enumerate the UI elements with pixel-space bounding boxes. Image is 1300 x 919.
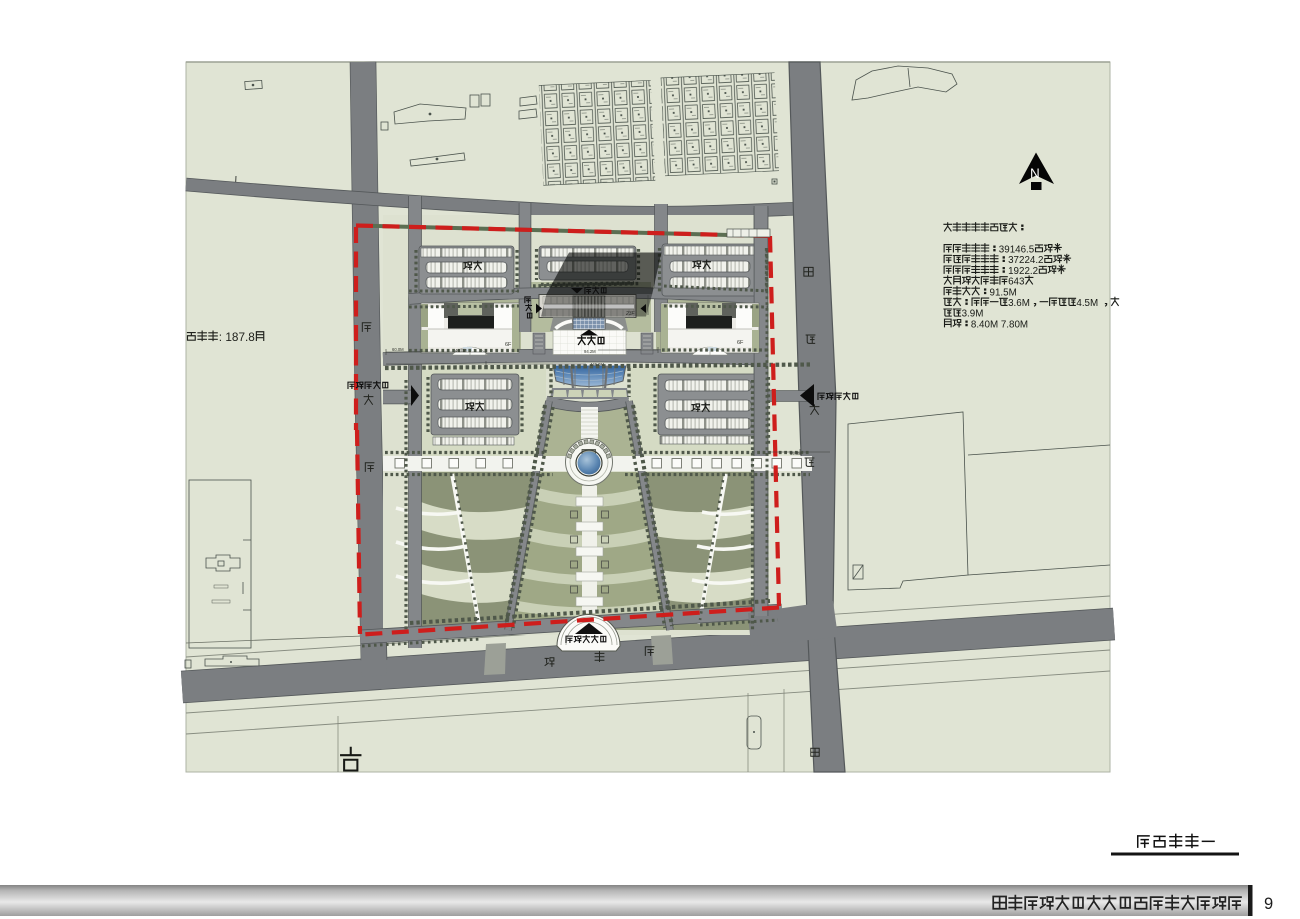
svg-text:6F: 6F: [505, 342, 512, 348]
svg-text:91.5M: 91.5M: [990, 287, 1017, 298]
svg-text:59.0M: 59.0M: [790, 451, 802, 456]
svg-text:45.0M: 45.0M: [455, 348, 467, 353]
svg-text:94.2M: 94.2M: [584, 349, 596, 354]
svg-text:37224.2: 37224.2: [1008, 255, 1043, 266]
svg-text:60.0M: 60.0M: [392, 347, 404, 352]
svg-text:N: N: [1030, 166, 1040, 181]
svg-text:3.6M: 3.6M: [1008, 298, 1030, 309]
svg-text:1922.2: 1922.2: [1008, 266, 1038, 277]
svg-text:446.0M: 446.0M: [590, 362, 604, 367]
svg-text:4.5M: 4.5M: [1076, 298, 1098, 309]
svg-text:3.9M: 3.9M: [962, 309, 984, 320]
svg-text:23F: 23F: [625, 311, 636, 317]
svg-text:8.40M 7.80M: 8.40M 7.80M: [971, 319, 1028, 330]
svg-text:643: 643: [1008, 277, 1025, 288]
svg-text:39146.5: 39146.5: [999, 245, 1035, 256]
svg-text:6F: 6F: [737, 340, 744, 346]
svg-text:: 187.8: : 187.8: [219, 330, 256, 344]
svg-text:9: 9: [1264, 895, 1273, 913]
